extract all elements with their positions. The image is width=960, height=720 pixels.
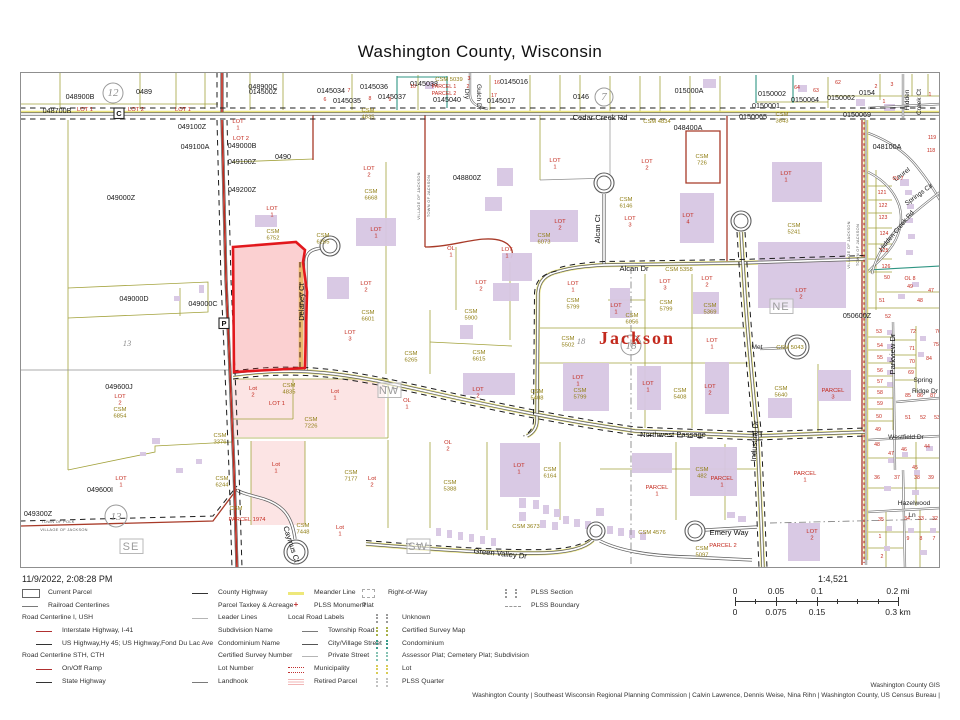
road-path [306, 248, 322, 372]
building [884, 546, 890, 551]
legend-label: Lot Number [218, 665, 254, 672]
scalebar-tick [776, 599, 777, 604]
map-label: 52 [885, 314, 891, 320]
building [703, 79, 716, 88]
map-label: 126 [882, 264, 891, 270]
map-label: 7 [933, 536, 936, 542]
building [768, 398, 792, 418]
taxkey-label: 0145037 [378, 92, 406, 101]
road-label: Northwest Passage [640, 430, 706, 439]
map-label: 6 [324, 97, 327, 103]
map-label: 32 [932, 516, 938, 522]
building [618, 528, 624, 536]
map-label: 39 [928, 475, 934, 481]
building [460, 325, 473, 339]
legend-label: Meander Line [314, 589, 356, 596]
map-label: PARCEL1 [646, 485, 670, 497]
map-label: 72 [910, 329, 916, 335]
map-label: 7 [348, 88, 351, 94]
map-label: LOT 1 [175, 107, 191, 113]
vdots-green-swatch [376, 627, 388, 636]
taxkey-label: 0150069 [843, 110, 871, 119]
building [255, 215, 277, 227]
map-label: OL2 [444, 440, 453, 452]
scalebar-tick [755, 599, 756, 604]
map-frame: 048900B0489048900C048700B014500Z01450340… [20, 72, 940, 568]
scalebar-km-label: 0.15 [809, 607, 826, 617]
csm-label: CSM [230, 506, 243, 512]
vdots-teal-swatch [376, 640, 388, 649]
map-label: 9 [907, 536, 910, 542]
building [898, 294, 905, 299]
map-label: 50 [884, 275, 890, 281]
map-label: 121 [878, 190, 887, 196]
legend-label: Right-of-Way [388, 589, 427, 596]
taxkey-label: 049200Z [228, 185, 257, 194]
map-label: 59 [877, 401, 883, 407]
line-dark-swatch [192, 593, 208, 594]
scalebar-mi-label: 0.05 [768, 586, 785, 596]
taxkey-label: 049100Z [228, 157, 257, 166]
map-label: LOT3 [659, 279, 671, 291]
road-label: Parkview Dr [888, 333, 897, 374]
map-label: 53 [876, 329, 882, 335]
legend-label: County Highway [218, 589, 268, 596]
building [543, 505, 549, 514]
building [908, 234, 915, 239]
csm-label: CSM6244 [216, 476, 230, 488]
map-label: 48 [874, 442, 880, 448]
csm-label: CSM6601 [362, 310, 375, 322]
building [176, 468, 183, 473]
map-label: LOT2 [701, 276, 713, 288]
road-label: Dry [463, 89, 470, 100]
map-label: LOT 1 [269, 401, 285, 407]
map-label: LOT2 [114, 394, 126, 406]
taxkey-label: 049300Z [24, 509, 53, 518]
map-label: 63 [813, 88, 819, 94]
scalebar-tick [898, 601, 899, 606]
taxkey-label: 0150065 [739, 112, 767, 121]
building [458, 532, 463, 540]
map-label: LOT1 [115, 476, 127, 488]
map-label: LOT2 [360, 281, 372, 293]
map-label: 50 [876, 414, 882, 420]
road-label: Delaney Ct [297, 282, 306, 320]
scalebar-mi-label: 0.1 [811, 586, 823, 596]
map-label: 10 [410, 84, 416, 90]
scalebar-km-label: 0.3 km [885, 607, 911, 617]
building [727, 512, 735, 518]
csm-label: CSM5799 [567, 298, 580, 310]
building [463, 373, 515, 395]
building [629, 530, 635, 538]
csm-label: CSM3376 [214, 433, 227, 445]
csm-label: CSM 5358 [665, 267, 692, 273]
vdots-gray-swatch [376, 614, 388, 623]
taxkey-label: 0145036 [360, 82, 388, 91]
map-label: 3 [891, 82, 894, 88]
building [888, 458, 894, 463]
legend-label: Road Centerline I, USH [22, 614, 93, 621]
building [140, 452, 146, 456]
map-label: 1 [883, 99, 886, 105]
building [493, 283, 519, 301]
taxkey-label: 0150001 [752, 101, 780, 110]
csm-label: CSM 4576 [638, 530, 665, 536]
legend-label: Current Parcel [48, 589, 92, 596]
map-label: 75 [933, 342, 939, 348]
taxkey-label: 0145035 [333, 96, 361, 105]
taxkey-label: 049600J [105, 382, 133, 391]
map-label: LOT1 [706, 338, 718, 350]
legend-label: On/Off Ramp [62, 665, 102, 672]
map-label: 86 [917, 393, 923, 399]
map-label: 35 [878, 517, 884, 523]
map-label: OL 8 [904, 276, 915, 282]
line-light-swatch [192, 618, 208, 619]
scalebar-line [735, 601, 898, 602]
map-label: 13 [123, 338, 132, 348]
csm-label: CSM 5043 [776, 345, 803, 351]
line-light-swatch [302, 656, 318, 657]
csm-label: CSM6615 [473, 350, 486, 362]
map-label: 2 [875, 84, 878, 90]
csm-label: CSM6164 [544, 467, 558, 479]
legend-label: Unknown [402, 614, 430, 621]
map-label: LOT1 [567, 281, 579, 293]
map-label: 51 [879, 298, 885, 304]
taxkey-label: 015000A [675, 86, 704, 95]
taxkey-label: 049000C [188, 299, 217, 308]
scale-ratio: 1:4,521 [793, 574, 873, 584]
map-label: VILLAGE OF JACKSON [416, 172, 421, 220]
taxkey-label: 048700B [43, 106, 72, 115]
scalebar-km-label: 0.075 [765, 607, 786, 617]
legend-label: Interstate Highway, I-41 [62, 627, 133, 634]
scalebar-tick [857, 599, 858, 604]
road-label: Alcan Dr [619, 264, 649, 273]
map-label: SW [408, 541, 428, 553]
map-label: 49 [907, 284, 913, 290]
taxkey-label: 0150064 [791, 95, 819, 104]
map-label: 8 [369, 96, 372, 102]
taxkey-label: 049100Z [178, 122, 207, 131]
legend-label: Subdivision Name [218, 627, 273, 634]
current-parcel [233, 242, 307, 372]
legend-label: PLSS Quarter [402, 678, 444, 685]
parcel-line [430, 342, 512, 346]
building [174, 296, 180, 301]
map-label: 54 [877, 343, 883, 349]
map-label: 2 [881, 554, 884, 560]
legend-label: PLSS Boundary [531, 602, 579, 609]
map-label: Lot2 [368, 476, 376, 488]
map-label: NE [772, 301, 789, 313]
map-label: PARCEL 2 [709, 543, 736, 549]
map-label: TOWN OF JACKSON [426, 175, 431, 217]
map-label: VILLAGE OF JACKSON [40, 527, 88, 532]
road-path [868, 172, 901, 271]
building [738, 516, 746, 522]
map-label: 124 [880, 231, 889, 237]
line-red-swatch [36, 631, 52, 632]
taxkey-label: 0145034 [317, 86, 345, 95]
csm-label: CSM3843 [776, 112, 789, 124]
map-title: Washington County, Wisconsin [0, 42, 960, 62]
taxkey-label: 0154 [859, 88, 875, 97]
map-label: 7 [601, 91, 607, 103]
building [480, 536, 485, 544]
dots-red-swatch [288, 667, 304, 673]
page: Washington County, Wisconsin 048900B0489… [0, 0, 960, 720]
map-label: 125 [880, 248, 889, 254]
map-label: 62 [835, 80, 841, 86]
building [912, 490, 919, 495]
scalebar-tick [898, 597, 899, 602]
map-label: PARCEL 1974 [228, 517, 266, 523]
legend-label: Leader Lines [218, 614, 257, 621]
map-label: 49 [875, 427, 881, 433]
map-label: 51 [905, 415, 911, 421]
map-label: 58 [877, 390, 883, 396]
parcel-highlight [251, 441, 305, 525]
taxkey-label: 048400A [674, 123, 703, 132]
legend-label: City/Village Street [328, 640, 382, 647]
road-label: Hazelwood [898, 500, 931, 507]
csm-label: CSM6752 [267, 229, 280, 241]
building [886, 526, 892, 531]
taxkey-label: 049000B [228, 141, 257, 150]
map-label: TOWN OF JACKSON [855, 224, 860, 266]
csm-label: CSM6265 [405, 351, 418, 363]
legend-label: Certified Survey Number [218, 652, 292, 659]
legend-label: Certified Survey Map [402, 627, 465, 634]
map-label: LOT 2 [128, 107, 144, 113]
csm-label: CSM7177 [345, 470, 358, 482]
map-label: 1 [929, 92, 932, 98]
road-label: Cedar Creek Rd [573, 113, 628, 122]
legend-label: Assessor Plat; Cemetery Plat; Subdivisio… [402, 652, 529, 659]
legend-label: PLSS Section [531, 589, 573, 596]
csm-label: CSM6073 [538, 233, 551, 245]
building [152, 438, 160, 444]
map-label: LOT2 [475, 280, 487, 292]
legend-label: Road Centerline STH, CTH [22, 652, 104, 659]
building [327, 277, 349, 299]
parcel-line [868, 266, 939, 270]
road-label: Gulch Dr [475, 84, 482, 111]
highway-marker: P [221, 319, 226, 328]
scalebar-tick [776, 601, 777, 606]
csm-label: CSM6265 [317, 233, 330, 245]
map-label: 70 [909, 359, 915, 365]
csm-label: CSM5408 [531, 389, 544, 401]
building [905, 190, 912, 195]
taxkey-label: 049100A [181, 142, 210, 151]
scalebar-mi-label: 0 [733, 586, 738, 596]
map-label: VILLAGE OF JACKSON [846, 221, 851, 269]
map-label: 119 [928, 135, 936, 141]
csm-label: CSM5097 [696, 546, 709, 558]
vdots-yellow-swatch [376, 665, 388, 674]
scalebar-tick [817, 597, 818, 602]
map-label: OL 7 [892, 176, 903, 182]
map-label: 18 [626, 340, 638, 352]
csm-label: CSM482 [696, 467, 709, 479]
map-label: 123 [879, 215, 888, 221]
map-label: 18 [577, 336, 586, 346]
map-label: 85 [905, 393, 911, 399]
csm-label: CSM5640 [775, 386, 788, 398]
csm-label: CSM4835 [362, 108, 375, 120]
csm-label: CSM6056 [626, 313, 639, 325]
building [563, 516, 569, 524]
taxkey-label: 0150002 [758, 89, 786, 98]
legend-label: Condominium [402, 640, 444, 647]
map-label: 55 [877, 355, 883, 361]
scalebar-tick [796, 599, 797, 604]
timestamp: 11/9/2022, 2:08:28 PM [22, 574, 112, 584]
line-dark-swatch [36, 644, 52, 645]
building [887, 382, 893, 387]
vdots-gray2-swatch [505, 589, 517, 598]
boundary-line [21, 486, 237, 521]
scalebar-tick [817, 601, 818, 606]
map-label: 52 [920, 415, 926, 421]
building [196, 459, 202, 464]
csm-label: CSM5408 [674, 388, 687, 400]
scalebar-tick [776, 597, 777, 602]
csm-label: CSM 4834 [643, 119, 671, 125]
building [884, 486, 891, 491]
map-label: 13 [111, 511, 123, 523]
lines-pink-swatch [288, 679, 304, 685]
map-label: LOT 2 [233, 136, 249, 142]
taxkey-label: 0489 [136, 87, 152, 96]
legend-label: US Highway,Hy 45; US Highway,Fond Du Lac… [62, 640, 213, 647]
building [469, 534, 474, 542]
legend-label: Railroad Centerlines [48, 602, 110, 609]
taxkey-label: 049000D [119, 294, 148, 303]
csm-label: CSM 3673 [512, 524, 539, 530]
legend-label: Lot [402, 665, 411, 672]
road-label: Westfield Dr [888, 434, 925, 441]
csm-label: CSM6146 [620, 197, 633, 209]
map-label: LOT2 [641, 159, 653, 171]
map-canvas[interactable]: 048900B0489048900C048700B014500Z01450340… [21, 73, 939, 567]
map-label: 64 [794, 85, 800, 91]
csm-label: CSM4835 [283, 383, 296, 395]
taxkey-label: 049000Z [107, 193, 136, 202]
map-label: 17 [491, 93, 497, 99]
building [920, 336, 926, 341]
footer-attribution: Washington County | Southeast Wisconsin … [472, 692, 940, 699]
building [485, 197, 502, 211]
map-label: LOT2 [363, 166, 375, 178]
taxkey-label: 048800Z [453, 173, 482, 182]
taxkey-label: 0145016 [500, 77, 528, 86]
legend-label: Condominium Name [218, 640, 280, 647]
parcel-line [68, 442, 232, 470]
building [856, 99, 865, 106]
corner-swatch [362, 589, 375, 598]
map-label: NW [379, 385, 399, 397]
road-path [306, 248, 322, 372]
building [772, 162, 822, 202]
map-label: 8 [920, 536, 923, 542]
scalebar-tick [837, 599, 838, 604]
parcel-line [425, 239, 512, 258]
vdots-lgray-swatch [376, 678, 388, 687]
map-label: 87 [930, 393, 936, 399]
building [920, 550, 927, 555]
vdots-teal2-swatch [376, 652, 388, 661]
building [552, 522, 558, 530]
map-label: 118 [927, 148, 935, 154]
map-label: 34 [904, 516, 910, 522]
csm-label: CSM5241 [788, 223, 801, 235]
map-label: 37 [894, 475, 900, 481]
legend-label: Township Road [328, 627, 374, 634]
map-label: 53 [934, 415, 939, 421]
building [199, 285, 204, 293]
road-label: Spring [913, 377, 932, 384]
taxkey-label: 014500Z [249, 87, 278, 96]
building [554, 509, 560, 517]
legend-label: Plat [362, 602, 374, 609]
map-label: LOT3 [624, 216, 636, 228]
scalebar-tick [898, 599, 899, 604]
taxkey-label: 0150062 [827, 93, 855, 102]
building [930, 528, 936, 533]
building [632, 453, 672, 473]
scalebar-tick [817, 599, 818, 604]
road-label: Met [752, 344, 763, 351]
legend-label: Landhook [218, 678, 248, 685]
building [447, 530, 452, 538]
building [519, 498, 526, 508]
legend: Current ParcelRailroad CenterlinesRoad C… [0, 588, 720, 698]
map-label: 84 [926, 356, 932, 362]
map-label: 38 [914, 475, 920, 481]
cross-swatch: + [288, 600, 304, 609]
road-label: Emery Way [710, 528, 749, 537]
map-label: 122 [879, 203, 888, 209]
building [574, 519, 580, 527]
map-label: 47 [928, 288, 934, 294]
building [906, 250, 913, 255]
map-label: 48 [917, 298, 923, 304]
footer-gis: Washington County GIS [871, 682, 941, 689]
building [596, 508, 604, 516]
csm-label: CSM5799 [660, 300, 673, 312]
csm-label: CSM5369 [704, 303, 717, 315]
map-label: PARCEL1 [794, 471, 818, 483]
map-label: 71 [909, 346, 915, 352]
building [436, 528, 441, 536]
legend-label: State Highway [62, 678, 106, 685]
csm-label: CSM5799 [574, 388, 587, 400]
map-label: 46 [901, 447, 907, 453]
building [540, 520, 546, 528]
legend-label: Municipality [314, 665, 350, 672]
taxkey-label: 049600I [87, 485, 113, 494]
map-label: TOWN OF POLK [41, 519, 74, 524]
scalebar-tick [735, 601, 736, 606]
line-gray-swatch [192, 682, 208, 683]
map-label: LOT1 [232, 119, 244, 131]
